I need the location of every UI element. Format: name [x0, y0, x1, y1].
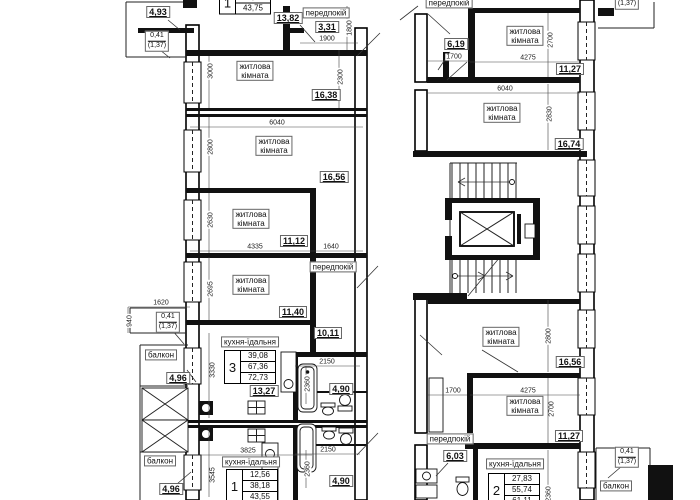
area-label-a-1638: 16,38 [312, 89, 341, 101]
room-label-hall-top-right: передпокій [426, 0, 473, 9]
room-label-hall-bottom-right: передпокій [427, 433, 474, 444]
coef-bottom-right: 0,41(1,37) [615, 447, 639, 468]
room-label-hall-top-left: передпокій [303, 7, 350, 18]
room-label-kitchen-apt1: кухня-їдальня [222, 456, 280, 467]
area-label-a-1140: 11,40 [279, 306, 307, 318]
area-label-a-619: 6,19 [444, 38, 468, 50]
coef-mid-left: 0,41(1,37) [156, 312, 180, 333]
area-label-a-490-1: 4,90 [329, 383, 353, 395]
room-label-kitchen-apt3: кухня-їдальня [221, 336, 279, 347]
area-label-a-496-1: 4,96 [166, 372, 190, 384]
area-label-a-331: 3,31 [315, 21, 339, 33]
dimension-1640-8: 1640 [322, 244, 340, 251]
dimension-3000-2: 3000 [208, 62, 215, 80]
floor-plan: житловакімнатажитловакімнатажитловакімна… [0, 0, 700, 500]
dimension-1700-25: 1700 [444, 388, 462, 395]
dimension-940-11: 940 [127, 314, 134, 328]
room-label-living-room-r1: житловакімната [506, 26, 543, 46]
area-label-a-603: 6,03 [443, 450, 467, 462]
area-label-a-490-2: 4,90 [329, 475, 353, 487]
room-label-living-room-l2: житловакімната [255, 136, 292, 156]
dimension-1900-0: 1900 [318, 36, 336, 43]
dimension-4275-26: 4275 [519, 388, 537, 395]
dimension-2150-17: 2150 [319, 447, 337, 454]
dimension-2300-3: 2300 [338, 68, 345, 86]
label-layer: житловакімнатажитловакімнатажитловакімна… [0, 0, 700, 500]
area-label-a-1011: 10,11 [314, 327, 342, 339]
dimension-1700-19: 1700 [445, 54, 463, 61]
area-label-a-1112: 11,12 [280, 235, 308, 247]
dimension-6040-22: 6040 [496, 86, 514, 93]
dimension-4335-7: 4335 [246, 244, 264, 251]
dimension-2700-20: 2700 [548, 31, 555, 49]
dimension-1800-1: 1800 [347, 19, 354, 37]
dimension-2800-24: 2800 [546, 327, 553, 345]
dimension-2695-9: 2695 [208, 280, 215, 298]
apartment-table-apt-top-1: 138,4143,75 [219, 0, 271, 15]
room-label-balcony-right: балкон [600, 480, 632, 491]
room-label-hall-left: передпокій [310, 261, 357, 272]
dimension-3825-15: 3825 [239, 448, 257, 455]
room-label-living-room-l3: житловакімната [232, 209, 269, 229]
dimension-2360-18: 2360 [305, 460, 312, 478]
area-label-a-1674: 16,74 [555, 138, 584, 150]
coef-top-right: 0,41(1,37) [615, 0, 639, 9]
room-label-living-room-r4: житловакімната [506, 396, 543, 416]
dimension-2800-5: 2800 [208, 138, 215, 156]
room-label-balcony-left-2: балкон [144, 455, 176, 466]
area-label-a-493: 4,93 [146, 6, 170, 18]
room-label-living-room-l1: житловакімната [236, 61, 273, 81]
area-label-a-1127-r1: 11,27 [556, 63, 584, 75]
room-label-living-room-r2: житловакімната [483, 103, 520, 123]
area-label-a-1656-r: 16,56 [556, 356, 585, 368]
room-label-living-room-r3: житловакімната [482, 327, 519, 347]
dimension-3330-12: 3330 [210, 361, 217, 379]
dimension-2360-28: 2360 [546, 485, 553, 500]
dimension-1620-10: 1620 [152, 300, 170, 307]
area-label-a-1656-l: 16,56 [320, 171, 349, 183]
dimension-2150-13: 2150 [318, 359, 336, 366]
room-label-living-room-l4: житловакімната [232, 275, 269, 295]
area-label-a-1327: 13,27 [250, 385, 279, 397]
apartment-table-apt-bottom-1: 112,5638,1843,55 [226, 469, 278, 500]
coef-top-left: 0,41(1,37) [145, 31, 169, 52]
dimension-2360-14: 2360 [305, 375, 312, 393]
apartment-table-apt-3: 339,0867,3672,73 [224, 350, 276, 384]
room-label-kitchen-apt2: кухня-їдальня [486, 458, 544, 469]
dimension-2830-23: 2830 [547, 105, 554, 123]
dimension-2700-27: 2700 [549, 400, 556, 418]
area-label-a-1127-r2: 11,27 [555, 430, 583, 442]
room-label-balcony-left-1: балкон [145, 349, 177, 360]
area-label-a-496-2: 4,96 [159, 483, 183, 495]
dimension-4275-21: 4275 [519, 55, 537, 62]
area-label-a-1382: 13,82 [274, 12, 303, 24]
apartment-table-apt-2: 227,8355,7461,11 [488, 473, 540, 500]
dimension-3545-16: 3545 [210, 466, 217, 484]
dimension-6040-4: 6040 [268, 120, 286, 127]
dimension-2630-6: 2630 [208, 211, 215, 229]
